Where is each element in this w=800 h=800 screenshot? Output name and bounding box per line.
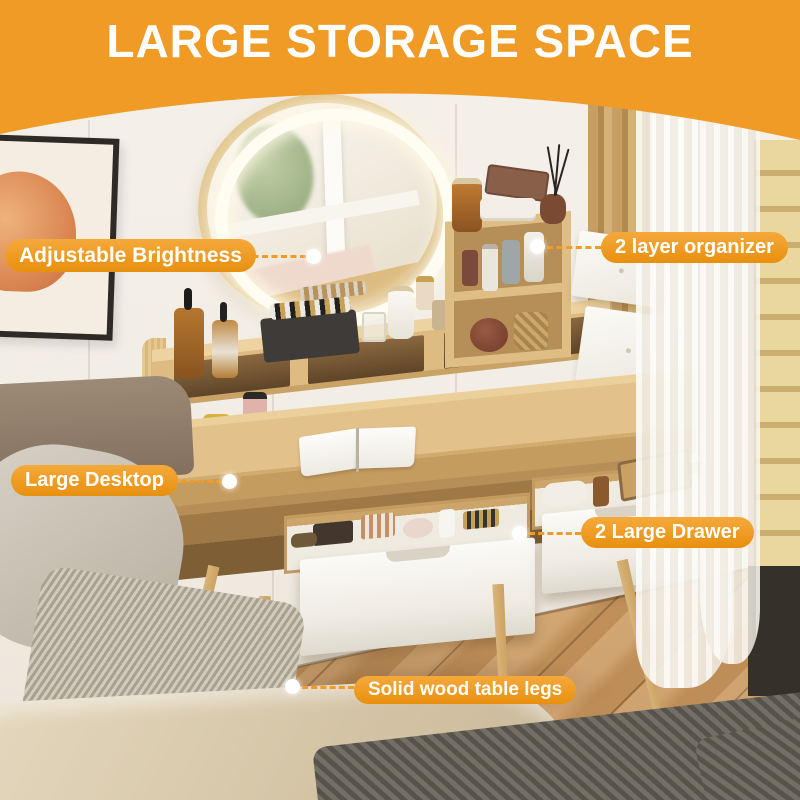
connector-dot: [530, 239, 545, 254]
perfume-bottle: [452, 178, 482, 232]
callout-2-layer-organizer: 2 layer organizer: [601, 232, 788, 263]
bottle: [502, 240, 520, 284]
artwork-abstract-shape: [0, 170, 78, 294]
connector-dot: [306, 249, 321, 264]
framed-artwork: [0, 133, 119, 341]
connector-dot: [512, 526, 527, 541]
pump-top: [184, 288, 192, 310]
callout-solid-wood-legs: Solid wood table legs: [354, 676, 576, 704]
two-layer-organizer: [445, 211, 571, 368]
white-bottle: [439, 509, 455, 539]
book-spine: [356, 428, 359, 472]
white-jar: [388, 286, 414, 339]
connector-line: [302, 686, 354, 689]
connector-line: [547, 246, 601, 249]
cotton-pads: [480, 198, 536, 218]
drawer-knob: [618, 268, 624, 274]
pump-bottle: [174, 308, 204, 378]
connector-dot: [222, 474, 237, 489]
callout-2-large-drawer: 2 Large Drawer: [581, 517, 754, 548]
palette-stack: [313, 520, 353, 546]
brush-set: [361, 512, 395, 539]
pump-top: [220, 302, 227, 322]
amber-bottle: [593, 476, 609, 508]
wood-slat-panel: [754, 140, 800, 576]
jewelry: [291, 532, 317, 549]
glass-cup: [362, 312, 386, 342]
product-infographic: LARGE STORAGE SPACE Adjustable Brightnes…: [0, 0, 800, 800]
cotton-pile: [543, 480, 587, 508]
round-jar: [470, 318, 508, 352]
pump-bottle: [212, 320, 238, 378]
open-book: [300, 419, 418, 481]
banner-title: LARGE STORAGE SPACE: [0, 14, 800, 68]
connector-dot: [285, 679, 300, 694]
book-page: [299, 428, 360, 477]
connector-line: [172, 480, 222, 483]
book-page: [356, 427, 416, 469]
callout-large-desktop: Large Desktop: [11, 465, 178, 496]
rattan-basket: [514, 312, 548, 350]
powder-puff: [403, 517, 433, 540]
drawer-knob: [626, 348, 632, 354]
bottle: [462, 250, 478, 286]
connector-line: [529, 532, 581, 535]
bottle: [482, 244, 498, 291]
lipsticks: [463, 508, 499, 529]
diffuser-vase: [540, 194, 566, 224]
callout-adjustable-brightness: Adjustable Brightness: [5, 239, 256, 272]
